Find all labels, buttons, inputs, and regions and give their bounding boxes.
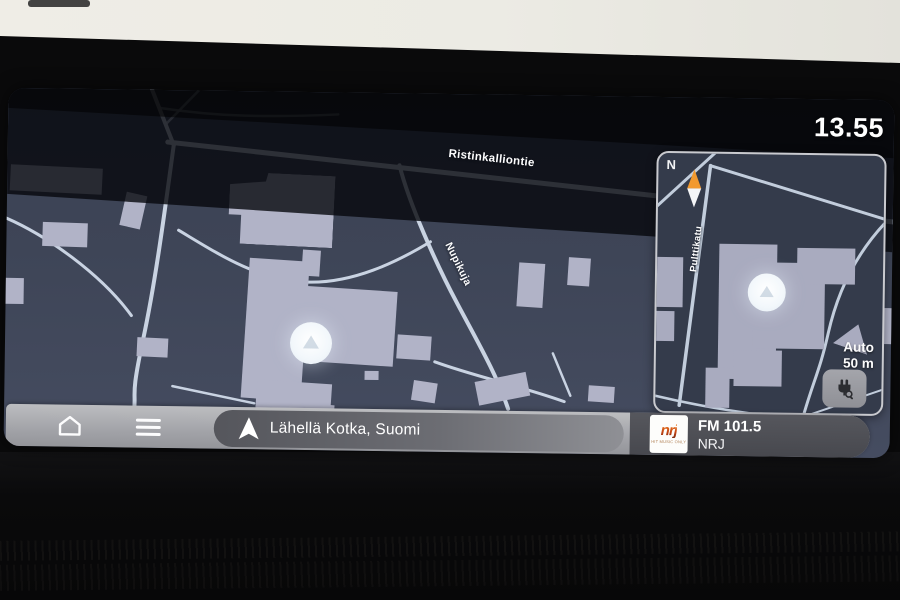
home-icon [57, 414, 83, 438]
building [588, 385, 615, 403]
zoom-mode-label: Auto [843, 340, 874, 356]
building [567, 257, 591, 286]
building [365, 371, 379, 380]
find-charging-stations-button[interactable] [822, 369, 867, 408]
building [301, 250, 321, 277]
menu-button[interactable] [128, 406, 169, 449]
building [705, 368, 730, 408]
radio-station-name: NRJ [698, 435, 762, 453]
nrj-logo-tagline: HIT MUSIC ONLY [651, 439, 686, 444]
radio-widget[interactable]: nrj HIT MUSIC ONLY FM 101.5 NRJ [629, 413, 870, 458]
minimap-inset[interactable]: Pulttikatu N Auto 50 m [653, 151, 887, 416]
nrj-logo: nrj HIT MUSIC ONLY [650, 415, 689, 454]
location-status-text: Lähellä Kotka, Suomi [270, 420, 421, 440]
dashboard-vent [28, 0, 90, 7]
building [657, 257, 684, 307]
clock: 13.55 [814, 112, 885, 144]
navigation-arrow-icon [238, 416, 260, 440]
home-button[interactable] [50, 404, 91, 447]
menu-icon [135, 418, 160, 435]
heading-arrow-icon [303, 335, 319, 348]
nrj-logo-text: nrj [661, 424, 677, 438]
location-status-pill[interactable]: Lähellä Kotka, Suomi [214, 409, 624, 452]
radio-frequency: FM 101.5 [698, 417, 762, 436]
infotainment-screen: Ristinkalliontie Nupikuja Pulttikatu [4, 88, 895, 458]
building [411, 380, 438, 403]
ev-charger-icon [833, 377, 855, 399]
building [10, 164, 103, 194]
building [396, 334, 432, 360]
building [4, 278, 24, 304]
minimap-zoom-scale: Auto 50 m [843, 340, 874, 372]
compass-label: N [666, 157, 676, 172]
building [733, 350, 781, 387]
heading-arrow-icon [760, 286, 774, 297]
building [516, 262, 545, 308]
building [42, 222, 88, 247]
building [136, 337, 168, 357]
building [656, 311, 674, 341]
building [797, 248, 855, 285]
dashboard-background [0, 0, 900, 70]
